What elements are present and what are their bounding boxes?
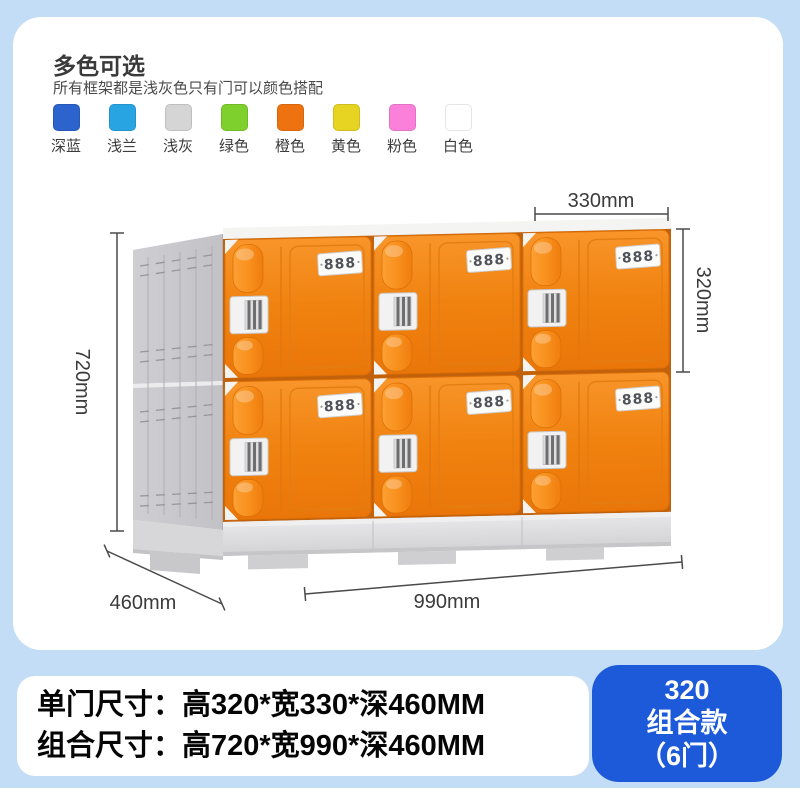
- product-infographic: 多色可选 所有框架都是浅灰色只有门可以颜色搭配 深蓝 浅兰 浅灰 绿色 橙色: [0, 0, 800, 800]
- spec-line-single-door: 单门尺寸：高320*宽330*深460MM: [37, 685, 589, 726]
- dimension-door-height: 320mm: [676, 229, 714, 372]
- total-height-label: 720mm: [71, 349, 93, 416]
- door-number-plate: 888: [615, 244, 660, 269]
- door-latch: [230, 438, 268, 476]
- base-foot: [546, 547, 604, 560]
- door-latch: [379, 293, 417, 331]
- locker-door: 888: [523, 230, 669, 371]
- locker-door: 888: [523, 372, 669, 513]
- locker-door: 888: [374, 233, 520, 374]
- locker-door: 888: [225, 237, 371, 378]
- badge-doors: （6门）: [639, 740, 735, 773]
- dimension-total-height: 720mm: [71, 233, 124, 531]
- door-number-plate: 888: [466, 247, 511, 272]
- base-foot: [248, 554, 308, 569]
- door-latch: [528, 289, 566, 327]
- spec-panel: 单门尺寸：高320*宽330*深460MM 组合尺寸：高720*宽990*深46…: [17, 676, 589, 776]
- depth-label: 460mm: [110, 592, 177, 614]
- door-number: 888: [622, 390, 655, 408]
- dimension-total-width: 990mm: [304, 555, 682, 613]
- base-foot: [398, 551, 456, 565]
- locker-door: 888: [225, 379, 371, 520]
- base-plinth: [223, 512, 671, 570]
- door-number: 888: [473, 252, 506, 270]
- badge-type: 组合款: [647, 707, 728, 740]
- door-number-plate: 888: [466, 389, 511, 414]
- locker-door: 888: [374, 375, 520, 516]
- door-number-plate: 888: [317, 393, 362, 418]
- door-latch: [379, 435, 417, 473]
- door-width-label: 330mm: [568, 190, 635, 212]
- dimension-door-width: 330mm: [535, 190, 668, 221]
- door-number: 888: [622, 248, 655, 266]
- door-number-plate: 888: [615, 386, 660, 411]
- spec-line-combined: 组合尺寸：高720*宽990*深460MM: [37, 726, 589, 767]
- door-number: 888: [324, 397, 357, 415]
- badge-model: 320: [664, 674, 709, 707]
- door-number: 888: [473, 394, 506, 412]
- door-number-plate: 888: [317, 251, 362, 276]
- side-foot: [150, 551, 200, 574]
- side-panel: [133, 234, 223, 574]
- door-number: 888: [324, 255, 357, 273]
- door-latch: [528, 431, 566, 469]
- total-width-label: 990mm: [414, 591, 481, 613]
- door-latch: [230, 296, 268, 334]
- door-height-label: 320mm: [692, 267, 714, 334]
- model-badge: 320 组合款 （6门）: [592, 665, 782, 782]
- locker-front: 888 888: [223, 218, 671, 570]
